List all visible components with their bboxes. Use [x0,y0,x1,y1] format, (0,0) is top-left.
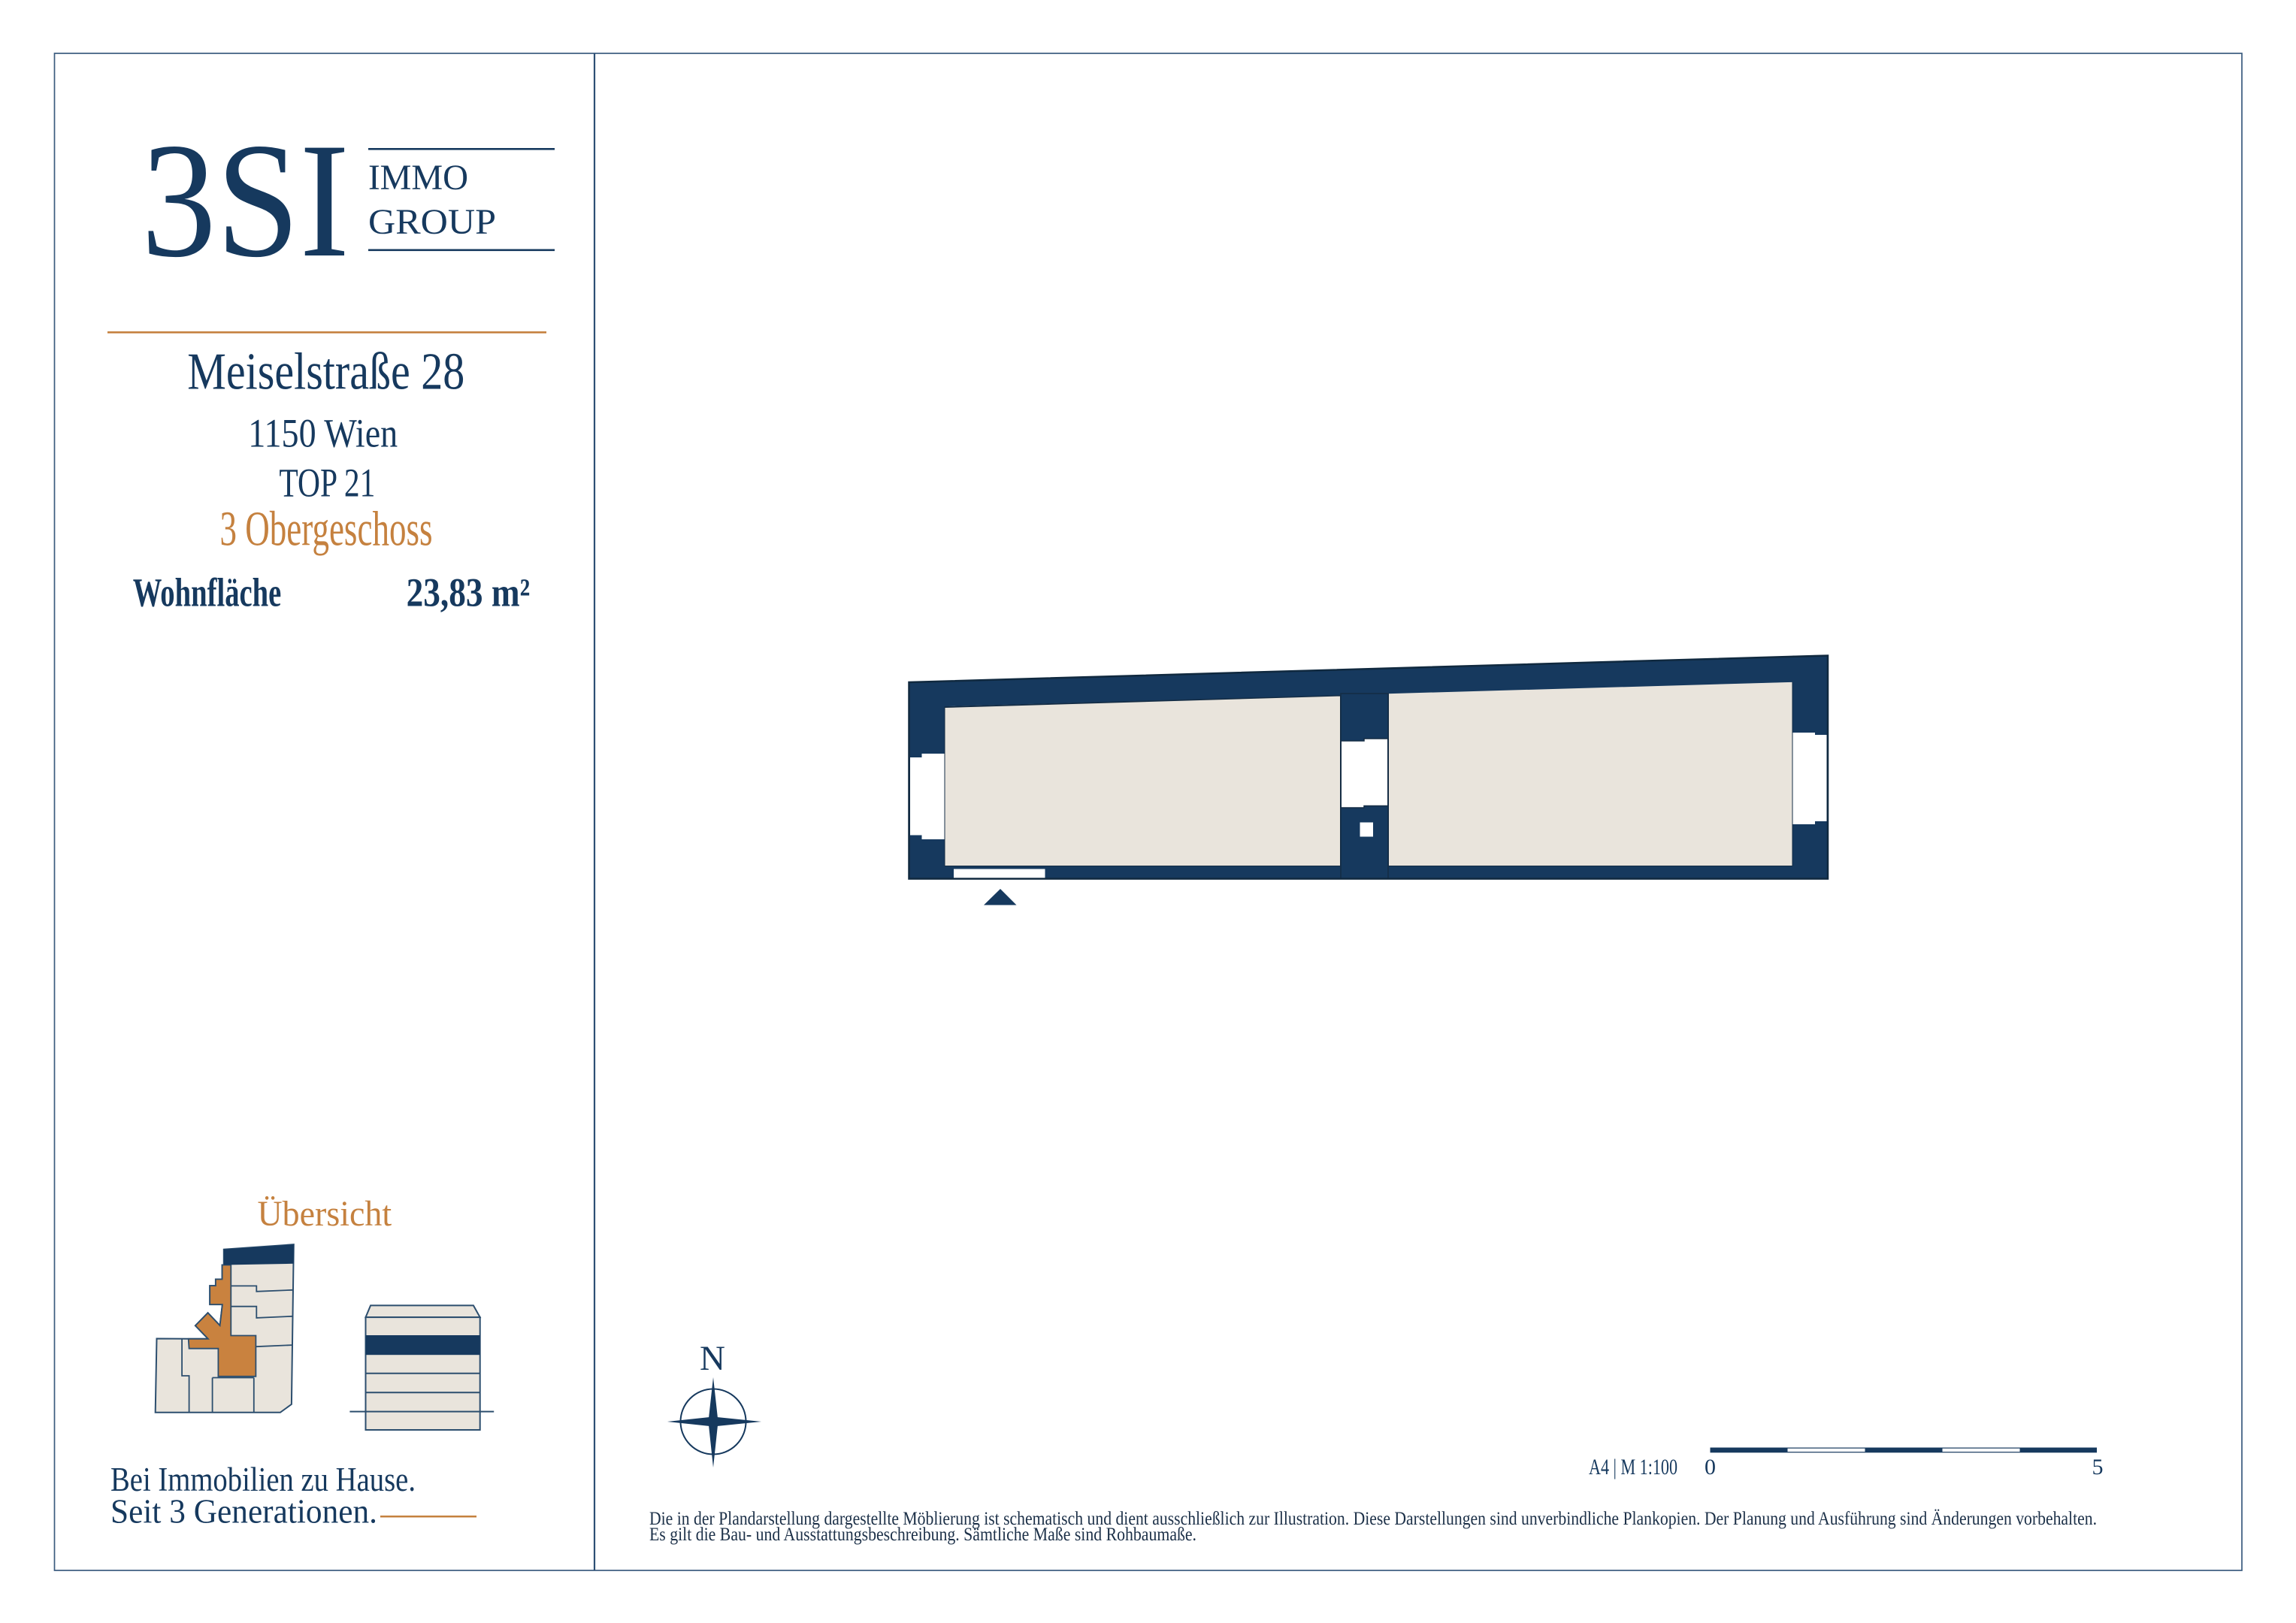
svg-text:23,83 m²: 23,83 m² [407,570,531,615]
svg-text:A4 | M 1:100: A4 | M 1:100 [1589,1455,1677,1479]
svg-text:0: 0 [1705,1455,1716,1479]
svg-text:Es gilt die Bau- und Ausstattu: Es gilt die Bau- und Ausstattungsbeschre… [649,1523,1196,1545]
svg-text:Übersicht: Übersicht [258,1194,392,1234]
svg-text:1150 Wien: 1150 Wien [248,410,398,456]
svg-text:IMMO: IMMO [368,159,468,198]
svg-text:N: N [700,1339,725,1378]
svg-text:3SI: 3SI [141,110,349,292]
svg-text:TOP 21: TOP 21 [279,460,375,505]
svg-text:Wohnfläche: Wohnfläche [133,570,281,615]
svg-text:GROUP: GROUP [368,203,496,242]
svg-text:Seit 3 Generationen.: Seit 3 Generationen. [110,1493,377,1531]
svg-text:5: 5 [2092,1455,2104,1479]
svg-text:3 Obergeschoss: 3 Obergeschoss [220,502,433,557]
svg-text:Meiselstraße 28: Meiselstraße 28 [187,343,464,401]
